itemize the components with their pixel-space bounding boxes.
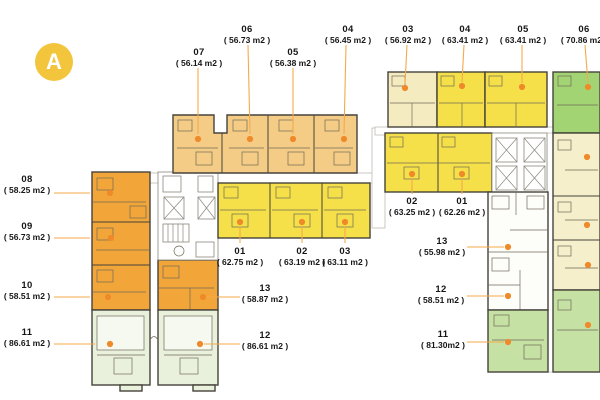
unit-block-13-left[interactable] [158, 260, 218, 310]
unit-dot-10 [105, 294, 111, 300]
unit-block-right-strip-green[interactable] [553, 290, 600, 372]
floorplan-canvas: 06( 56.73 m2 )07( 56.14 m2 )05( 56.38 m2… [0, 0, 600, 400]
unit-dot-12 [197, 341, 203, 347]
floorplan-drawing [0, 0, 600, 400]
unit-dot [585, 262, 591, 268]
unit-block-06-right[interactable] [553, 72, 600, 133]
unit-dot-01 [237, 219, 243, 225]
unit-dot-02 [299, 219, 305, 225]
block-a-badge: A [35, 43, 73, 81]
unit-dot-03 [342, 219, 348, 225]
unit-dot-04 [341, 136, 347, 142]
unit-dot-02 [409, 171, 415, 177]
unit-dot-05 [290, 136, 296, 142]
block-a-letter: A [46, 49, 62, 75]
unit-dot-06 [585, 84, 591, 90]
unit-dot-03 [402, 85, 408, 91]
unit-dot [584, 154, 590, 160]
elevator-core-left [158, 172, 218, 260]
unit-block-right-strip-cream[interactable] [553, 133, 600, 290]
unit-block-03-right[interactable] [388, 72, 437, 127]
elevator-core-right [492, 133, 547, 192]
unit-block-11-left-balcony [120, 385, 142, 391]
unit-dot-07 [195, 136, 201, 142]
unit-dot-04 [459, 83, 465, 89]
unit-dot-08 [107, 190, 113, 196]
unit-block-04-right[interactable] [437, 72, 485, 127]
unit-dot-06 [247, 136, 253, 142]
unit-dot [585, 322, 591, 328]
unit-dot-01 [459, 171, 465, 177]
unit-block-11-right[interactable] [488, 310, 548, 372]
unit-dot-11 [107, 341, 113, 347]
unit-dot-13 [200, 294, 206, 300]
unit-block-13-12-right[interactable] [488, 192, 548, 310]
unit-dot [584, 222, 590, 228]
unit-dot-12 [505, 293, 511, 299]
unit-dot-11 [505, 339, 511, 345]
unit-block-12-left-balcony [193, 385, 215, 391]
unit-dot-13 [505, 244, 511, 250]
unit-block-07-06-05-04[interactable] [173, 115, 357, 173]
unit-block-08-09-10[interactable] [92, 172, 150, 310]
unit-block-01-02-03[interactable] [218, 183, 370, 238]
unit-dot-09 [108, 235, 114, 241]
unit-dot-05 [519, 84, 525, 90]
